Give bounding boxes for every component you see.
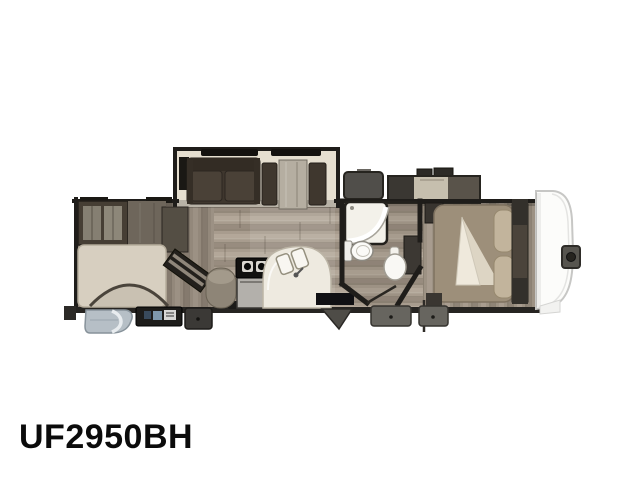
booth-dinette [262, 160, 326, 209]
pillow [494, 256, 514, 298]
front-cap [536, 191, 580, 314]
rv-floorplan-image: UF2950BH [0, 0, 640, 480]
wood-wall-panel [128, 201, 166, 245]
burner [244, 263, 251, 270]
slide-window-right [271, 149, 321, 156]
sofa [187, 158, 260, 204]
slide-window-left [201, 149, 258, 156]
roof-boxes [344, 168, 480, 203]
glass-cabinet [78, 201, 128, 245]
roof-vent-box [344, 172, 383, 199]
toilet [344, 241, 373, 261]
power-center [136, 307, 182, 326]
pantry-cabinet [162, 207, 188, 252]
entry-step-wedge [322, 309, 352, 329]
living-slide-out [175, 149, 338, 209]
bedroom-step [426, 293, 442, 307]
dinette-bench-left [262, 163, 277, 205]
nightstand-bottom [512, 278, 528, 304]
pillow [494, 210, 514, 252]
utility-box-mid [371, 306, 411, 326]
dinette-table [279, 160, 307, 209]
bedroom-wardrobe-slide [388, 168, 480, 203]
round-counter-end [206, 268, 236, 308]
utility-box-front [419, 306, 448, 326]
nightstand-top [512, 199, 528, 225]
dinette-bench-right [309, 163, 326, 205]
hitch-pin [562, 246, 580, 268]
bathroom [342, 201, 421, 305]
rear-bumper [64, 306, 76, 320]
utility-box-rear [185, 308, 212, 329]
shower [345, 202, 389, 244]
entry-door-mat [316, 293, 354, 305]
entry-step [85, 310, 132, 333]
floorplan-svg [0, 0, 640, 480]
model-label: UF2950BH [19, 418, 193, 457]
